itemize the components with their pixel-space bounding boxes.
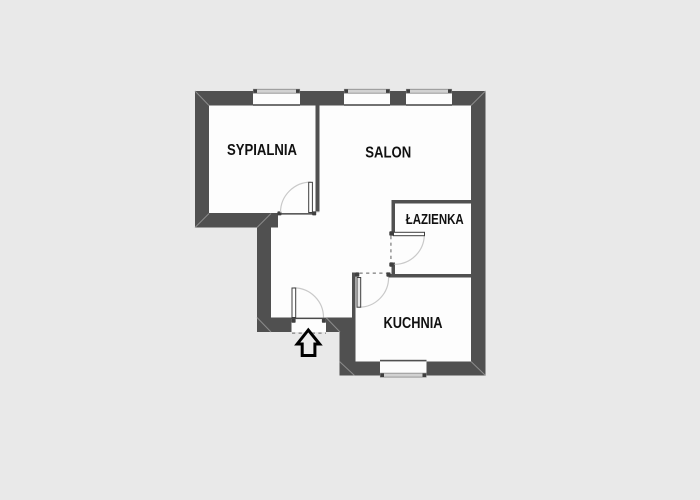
svg-text:ŁAZIENKA: ŁAZIENKA bbox=[406, 212, 464, 228]
svg-text:KUCHNIA: KUCHNIA bbox=[384, 315, 443, 332]
svg-text:SALON: SALON bbox=[365, 145, 411, 162]
svg-text:SYPIALNIA: SYPIALNIA bbox=[227, 142, 297, 159]
